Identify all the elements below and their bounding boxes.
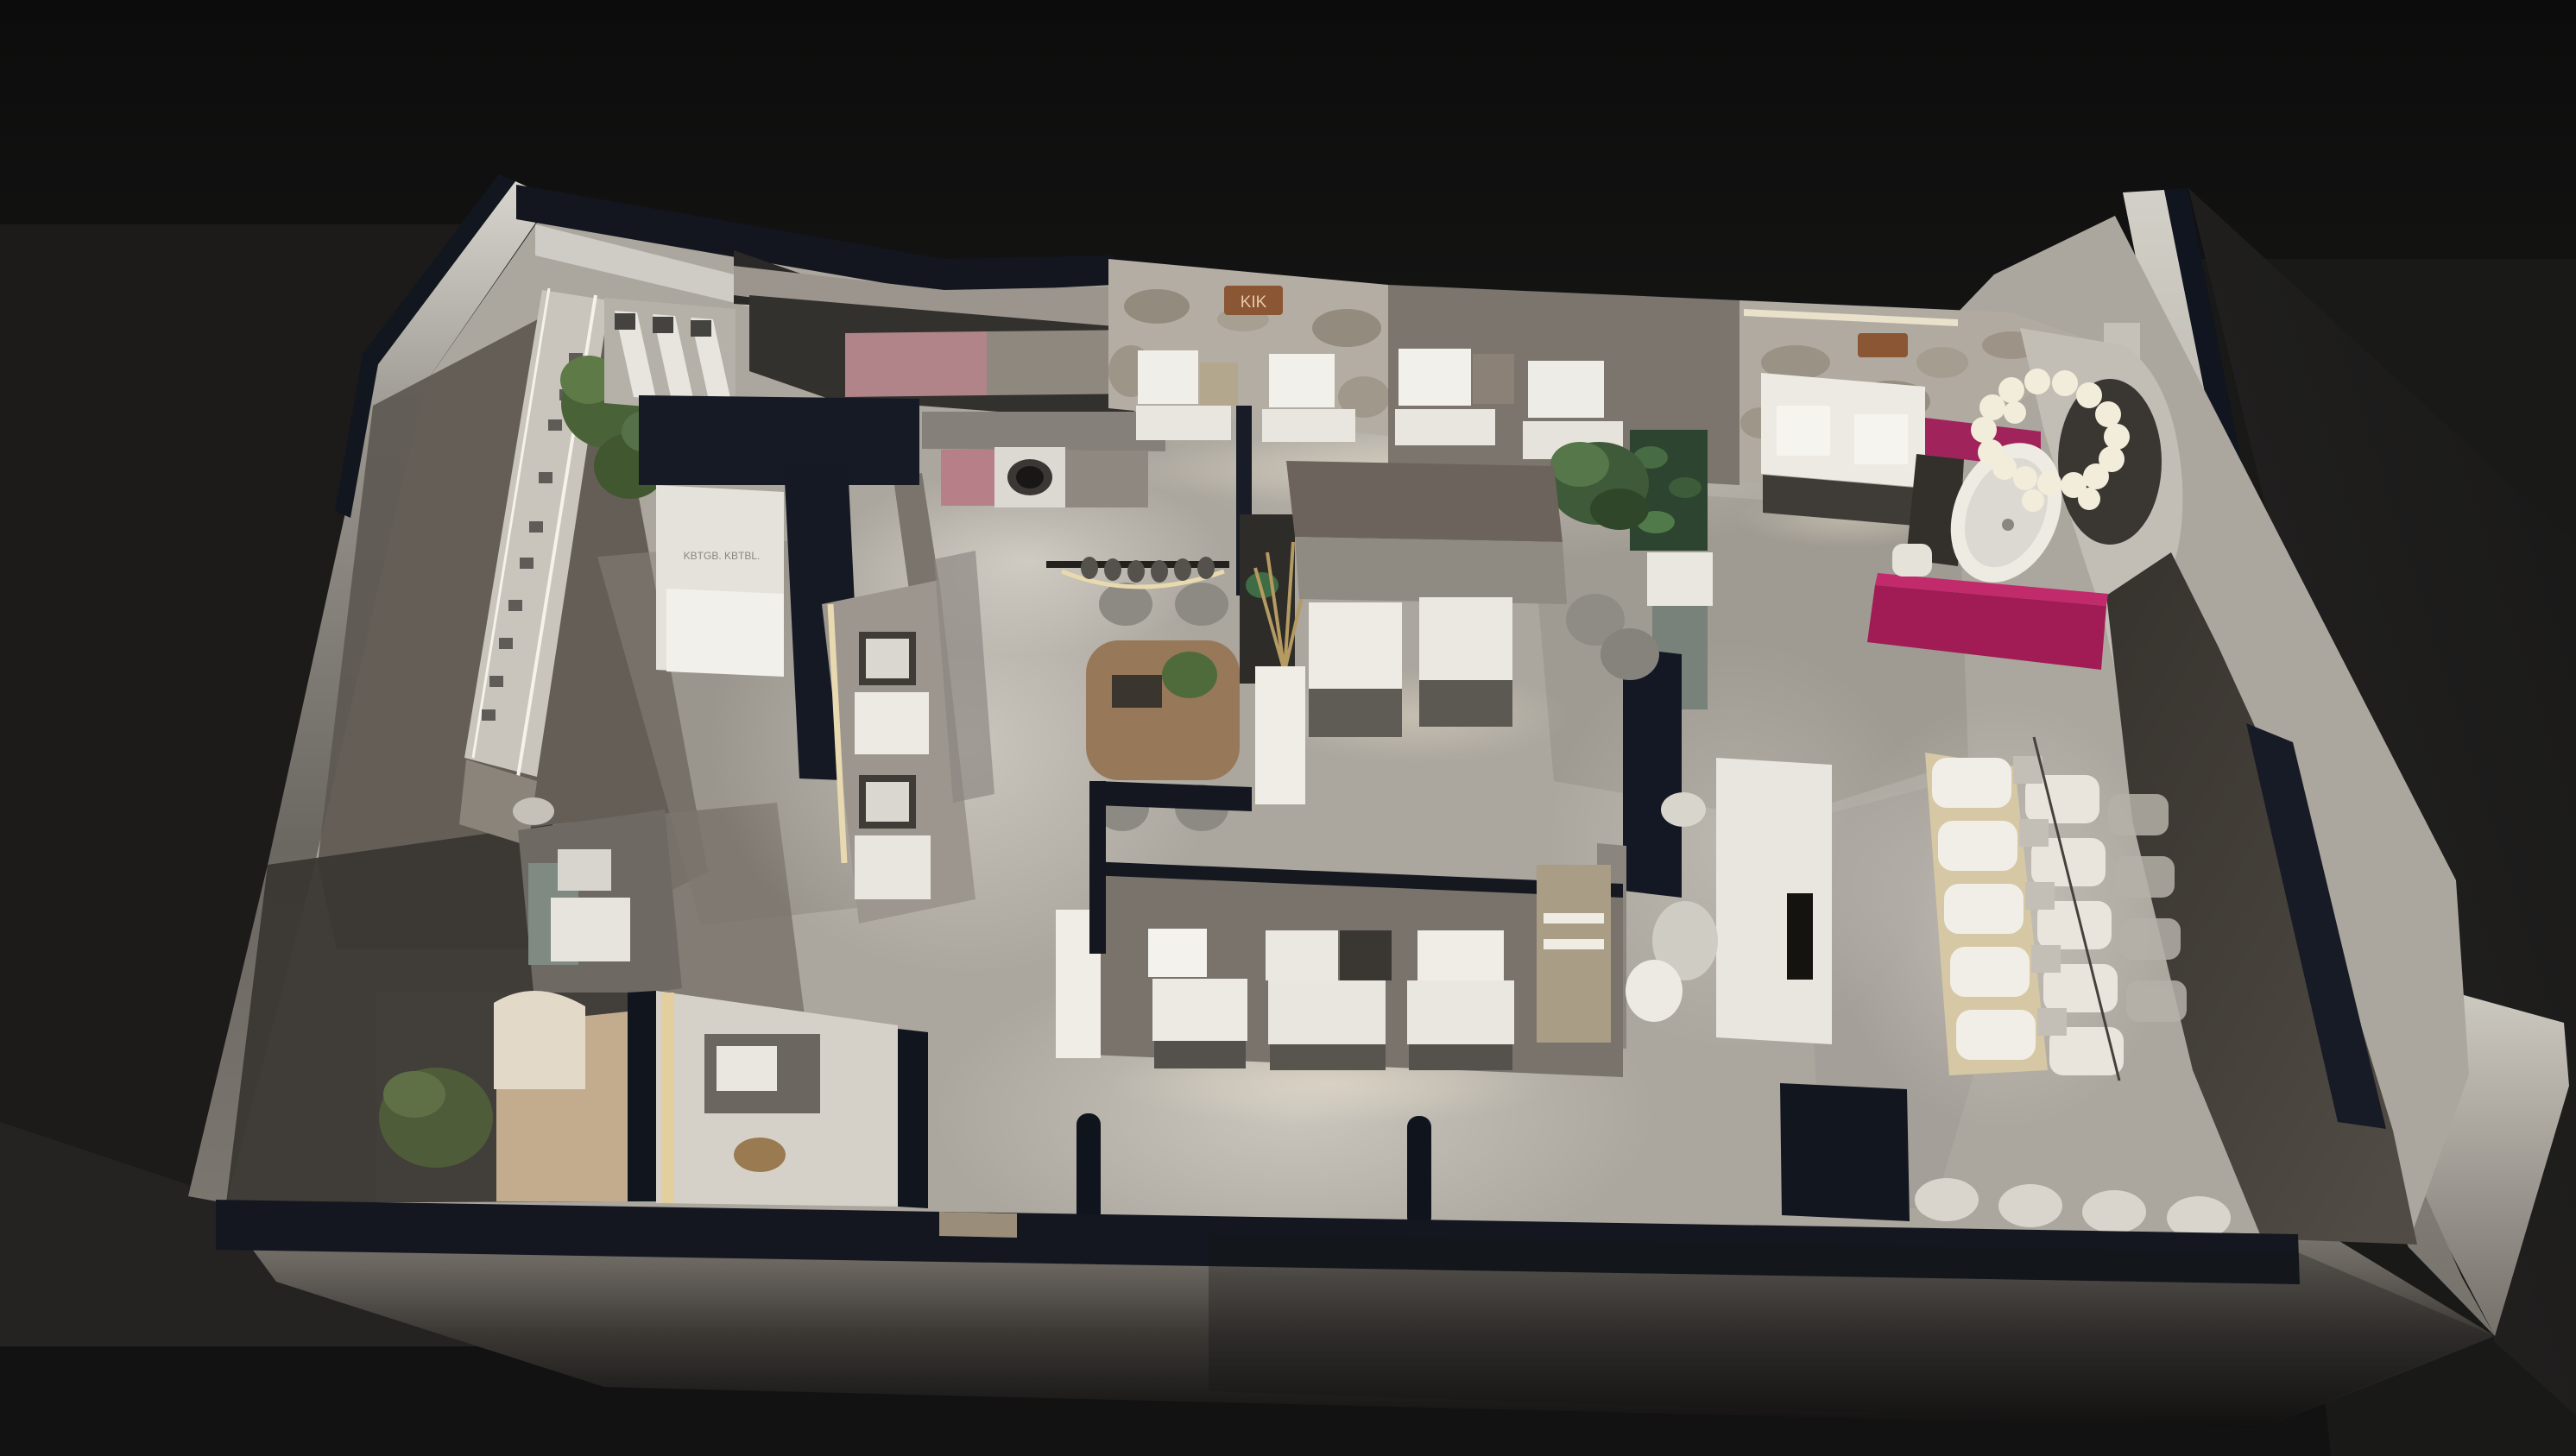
- svg-text:KIK: KIK: [1241, 293, 1267, 312]
- svg-text:KBTGB. KBTBL.: KBTGB. KBTBL.: [684, 550, 761, 562]
